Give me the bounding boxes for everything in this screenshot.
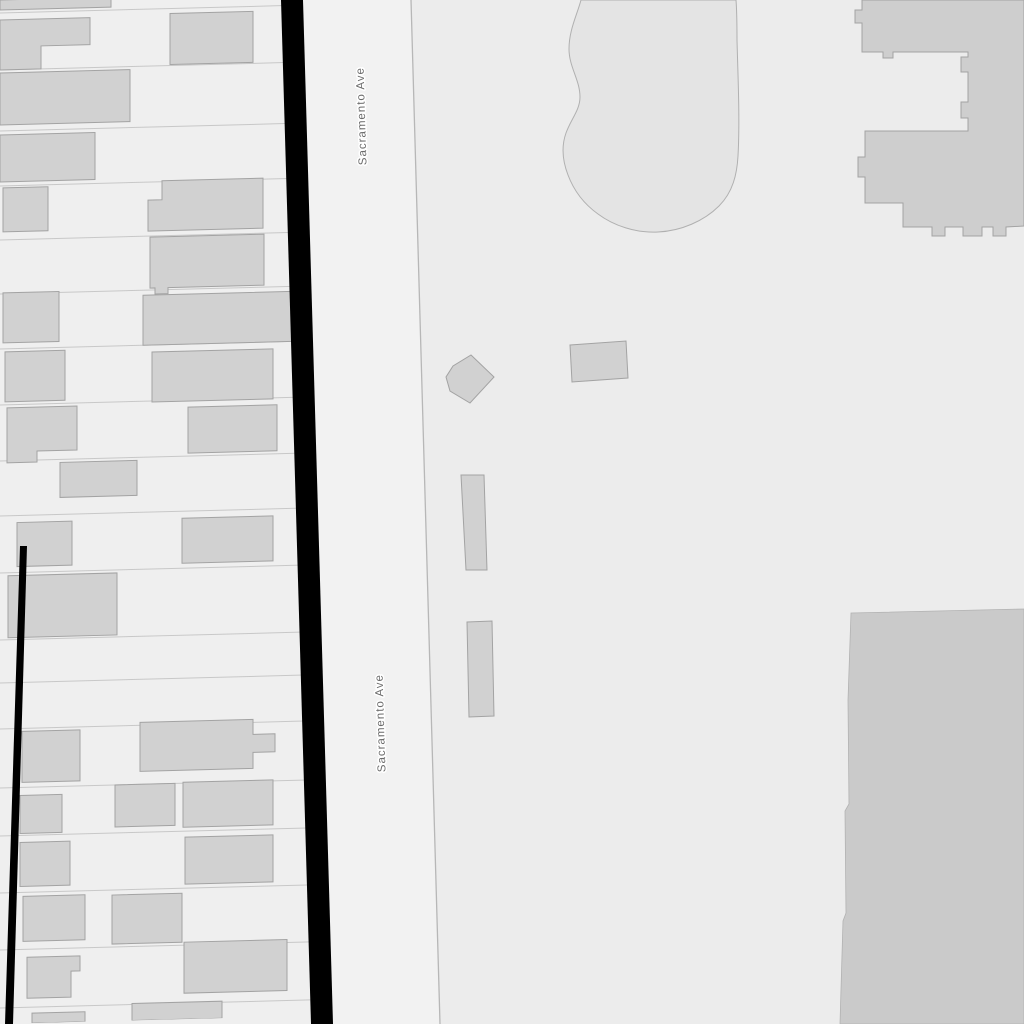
building-footprint — [148, 178, 263, 231]
building-footprint — [182, 516, 273, 563]
building-footprint — [467, 621, 494, 717]
building-footprint — [461, 475, 487, 570]
building-footprint — [132, 1001, 222, 1020]
building-footprint — [185, 835, 273, 884]
building-footprint — [5, 350, 65, 402]
building-footprint — [22, 730, 80, 783]
building-footprint — [115, 783, 175, 827]
building-footprint — [0, 70, 130, 125]
building-footprint — [23, 895, 85, 942]
map-canvas[interactable]: Sacramento Ave Sacramento Ave — [0, 0, 1024, 1024]
building-footprint — [150, 234, 264, 294]
building-footprint — [170, 11, 253, 64]
building-footprint — [20, 841, 70, 886]
building-footprint — [183, 780, 273, 827]
building-footprint — [3, 187, 48, 232]
building-footprint — [143, 291, 298, 345]
building-footprint — [60, 460, 137, 497]
building-footprint — [112, 893, 182, 944]
building-footprint — [152, 349, 273, 402]
building-footprint — [20, 794, 62, 833]
building-footprint — [0, 133, 95, 182]
building-footprint — [184, 939, 287, 993]
dark-block-area — [840, 609, 1024, 1024]
building-footprint — [188, 405, 277, 453]
map-svg: Sacramento Ave Sacramento Ave — [0, 0, 1024, 1024]
pond-area — [563, 0, 739, 232]
building-footprint — [3, 291, 59, 342]
building-footprint — [570, 341, 628, 382]
building-footprint — [32, 1012, 85, 1023]
